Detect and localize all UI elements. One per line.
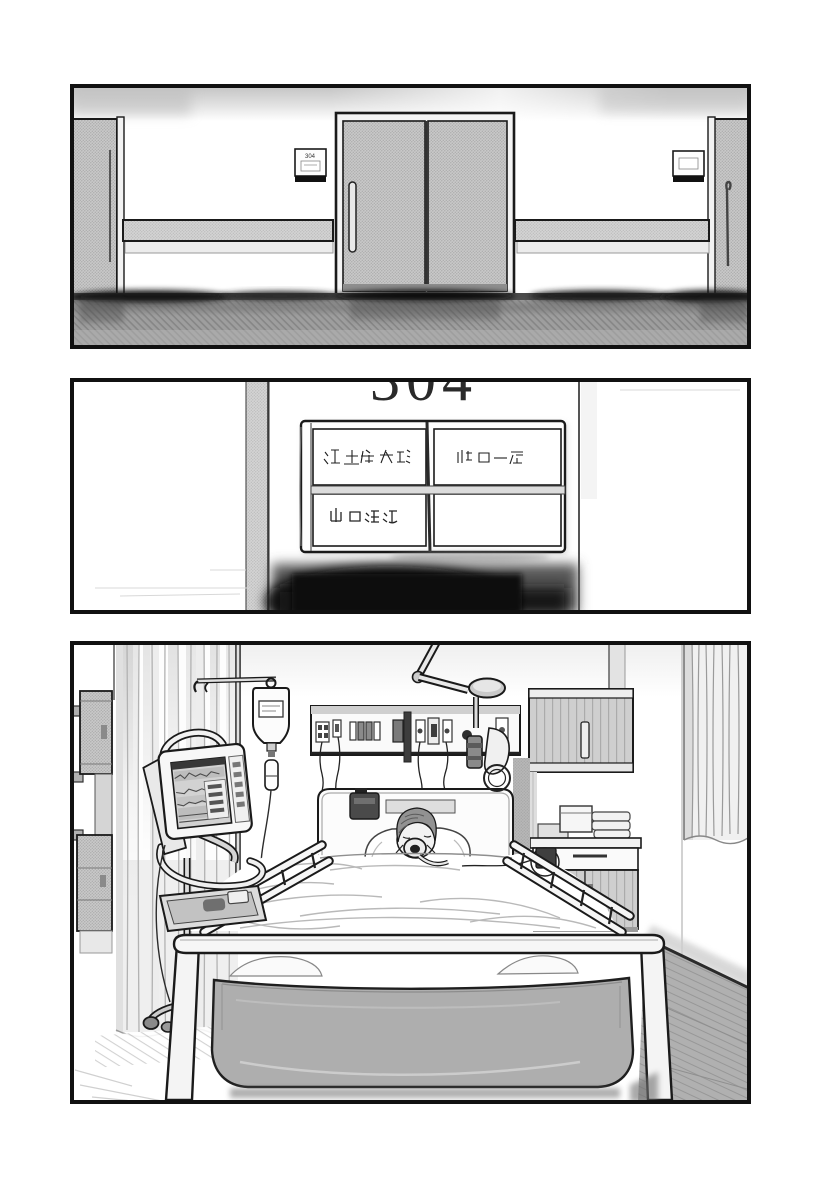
svg-text:304: 304 — [305, 154, 316, 160]
